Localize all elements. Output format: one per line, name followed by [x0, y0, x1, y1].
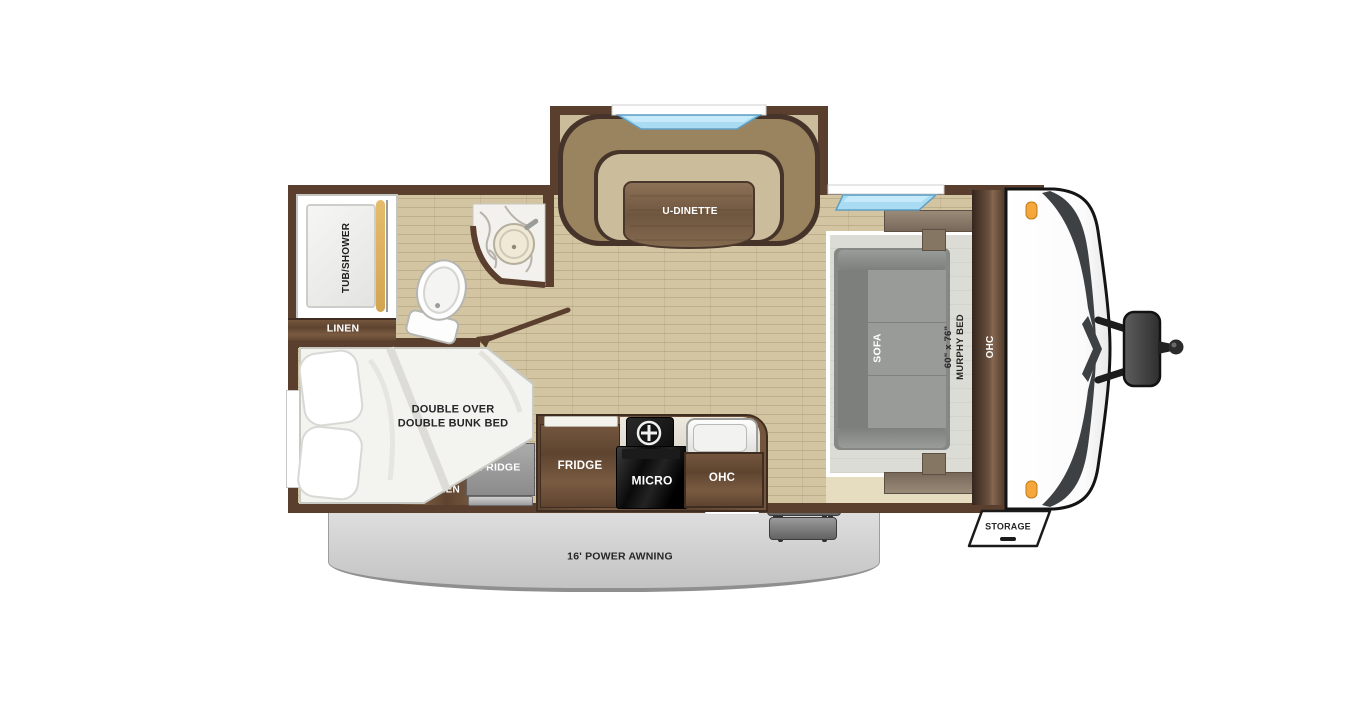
bunk-bed-label: DOUBLE OVER DOUBLE BUNK BED: [398, 403, 509, 431]
bunk-pillow-2: [297, 425, 364, 501]
bunk-line1: DOUBLE OVER: [398, 403, 509, 417]
marker-light-bottom: [1026, 481, 1037, 498]
u-dinette-label: U-DINETTE: [662, 206, 717, 219]
hitch-box: [1124, 312, 1160, 386]
storage-label: STORAGE: [985, 521, 1031, 532]
hitch-ball: [1169, 340, 1184, 355]
front-cap: [1006, 189, 1110, 509]
bathroom-door: [476, 310, 568, 348]
shape-overlay: [0, 0, 1366, 721]
front-window: [828, 185, 944, 210]
floorplan-canvas: 16' POWER AWNING TUB/SHOWER LINEN: [0, 0, 1366, 721]
marker-light-top: [1026, 202, 1037, 219]
bunk-pillow-1: [298, 349, 364, 428]
storage-handle: [1000, 537, 1016, 541]
slideout-window: [612, 105, 766, 129]
toilet: [405, 255, 473, 345]
bathroom-vanity: [473, 204, 545, 285]
bunk-line2: DOUBLE BUNK BED: [398, 417, 509, 431]
stove-burner-icon: [638, 422, 660, 444]
